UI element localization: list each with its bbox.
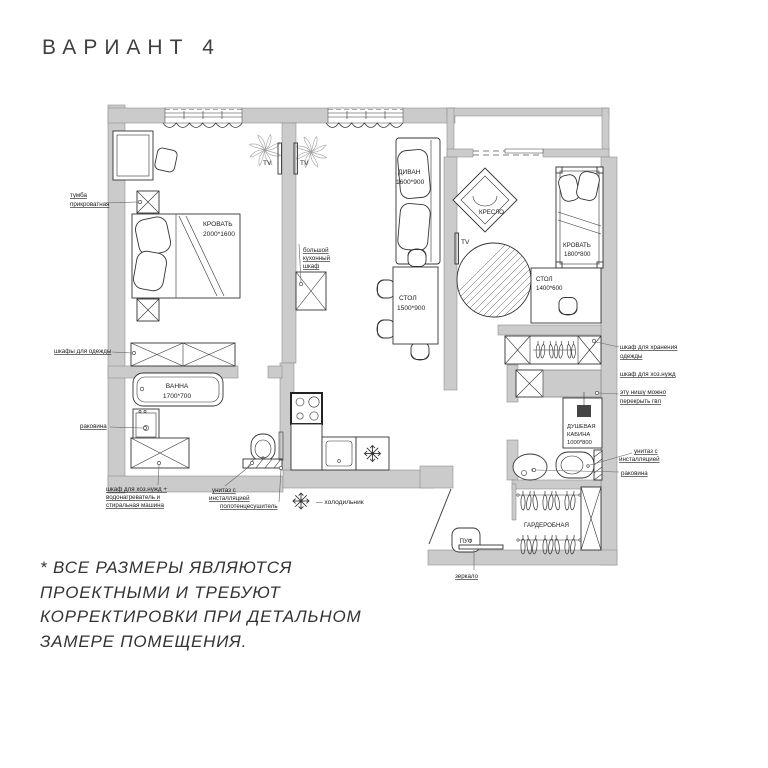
shower-l1: ДУШЕВАЯ	[567, 424, 596, 430]
callout-text: эту нишу можно	[620, 389, 667, 396]
bath-size: 1700*700	[163, 393, 192, 400]
storage-row	[505, 336, 601, 364]
sink-bathroom2	[513, 454, 547, 480]
mirror	[459, 545, 503, 549]
callout-text: шкаф для хоз.нужд +	[106, 486, 167, 493]
window-bedroom1	[163, 108, 242, 128]
callout-text: стиральная машина	[106, 502, 165, 509]
snowflake-icon	[365, 446, 381, 462]
callout-text: шкаф для хранения	[620, 344, 677, 351]
tv-label: TV	[300, 160, 309, 167]
wardrobe-row-bedroom1	[131, 343, 235, 366]
callout-text: унитаз с	[212, 487, 236, 494]
shower-l2: КАБИНА	[567, 432, 590, 438]
walls	[108, 105, 617, 565]
callout-text: унитаз с	[634, 448, 658, 455]
footnote-line: ЗАМЕРЕ ПОМЕЩЕНИЯ.	[40, 630, 380, 655]
callout-nightstand: тумба прикроватная	[70, 192, 142, 208]
kitchen-sink	[322, 437, 356, 470]
callout-text: шкафы для одежды	[54, 348, 112, 355]
legend-fridge: — холодильник	[293, 493, 364, 509]
callout-text: раковина	[80, 423, 107, 430]
callout-text: водонагреватель и	[106, 494, 161, 501]
bed1-label: КРОВАТЬ	[203, 221, 233, 228]
curtain	[163, 123, 242, 128]
kitchen-counter	[291, 424, 322, 470]
dining-size: 1500*900	[397, 305, 426, 312]
bed1-size: 2000*1600	[203, 231, 235, 238]
stove	[291, 393, 322, 424]
callout-utility2: шкаф для хоз.нужд	[620, 371, 676, 378]
tv-label: TV	[461, 239, 470, 246]
sofa-size: 1600*900	[396, 179, 425, 186]
tv-label: TV	[263, 160, 272, 167]
pouf-label: ПУФ	[460, 538, 473, 545]
floor-plan-sheet: ВАРИАНТ 4	[0, 0, 768, 768]
callout-text: тумба	[70, 192, 88, 199]
nightstand-2	[137, 299, 159, 321]
sofa-label: ДИВАН	[398, 169, 421, 176]
walk-in-closet: ГАРДЕРОБНАЯ	[517, 487, 601, 554]
armchair: КРЕСЛО	[453, 168, 517, 232]
cushion	[397, 203, 431, 251]
dining-label: СТОЛ	[399, 295, 417, 302]
callout-text: перекрыть гвл	[620, 398, 661, 405]
snowflake-icon	[293, 493, 309, 509]
callout-text: инсталляцией	[209, 495, 250, 502]
bed2-label: КРОВАТЬ	[563, 242, 591, 249]
footnote-line: * ВСЕ РАЗМЕРЫ ЯВЛЯЮТСЯ	[40, 556, 380, 581]
callout-text: кухонный	[303, 255, 331, 262]
callout-text: раковина	[621, 470, 648, 477]
fridge	[356, 437, 389, 470]
shower-l3: 1000*800	[567, 440, 592, 446]
desk-bedroom1	[113, 131, 178, 180]
sofa: ДИВАН 1600*900	[396, 138, 440, 264]
closet-label: ГАРДЕРОБНАЯ	[524, 522, 569, 529]
sink-bathroom1	[133, 409, 159, 440]
callout-text: зеркало	[455, 573, 479, 580]
callout-text: шкаф для хоз.нужд	[620, 371, 676, 378]
entry-door-leaf	[429, 489, 451, 544]
callout-text: одежды	[620, 353, 643, 360]
armchair-label: КРЕСЛО	[479, 209, 504, 216]
legend-text: — холодильник	[316, 499, 364, 506]
callout-text: инсталляцией	[619, 456, 660, 463]
window-living	[326, 108, 403, 128]
desk2-size: 1400*600	[536, 285, 563, 292]
toilet-1	[243, 434, 282, 468]
bath-label: ВАННА	[166, 383, 189, 390]
callout-text: прикроватная	[70, 201, 109, 208]
desk2-label: СТОЛ	[536, 276, 553, 283]
footnote: * ВСЕ РАЗМЕРЫ ЯВЛЯЮТСЯ ПРОЕКТНЫМИ И ТРЕБ…	[40, 556, 380, 655]
toilet-2	[556, 450, 602, 480]
balcony-window	[473, 149, 543, 155]
callout-text: большой	[303, 247, 329, 254]
callout-text: полотенцесушитель	[220, 503, 278, 510]
callout-text: шкаф	[303, 263, 319, 270]
bed2-size: 1800*800	[564, 251, 591, 258]
desk-bedroom2: СТОЛ 1400*600	[531, 268, 601, 323]
curtain	[326, 123, 403, 128]
bed-double: КРОВАТЬ 2000*1600	[132, 214, 240, 298]
bed-single: КРОВАТЬ 1800*800	[556, 167, 603, 268]
footnote-line: ПРОЕКТНЫМИ И ТРЕБУЮТ	[40, 581, 380, 606]
dining-table: СТОЛ 1500*900	[377, 249, 438, 360]
shower-cabin: ДУШЕВАЯ КАБИНА 1000*800	[563, 392, 602, 448]
shower-head	[577, 405, 591, 417]
footnote-line: КОРРЕКТИРОВКИ ПРИ ДЕТАЛЬНОМ	[40, 605, 380, 630]
bathtub: ВАННА 1700*700	[133, 373, 223, 406]
